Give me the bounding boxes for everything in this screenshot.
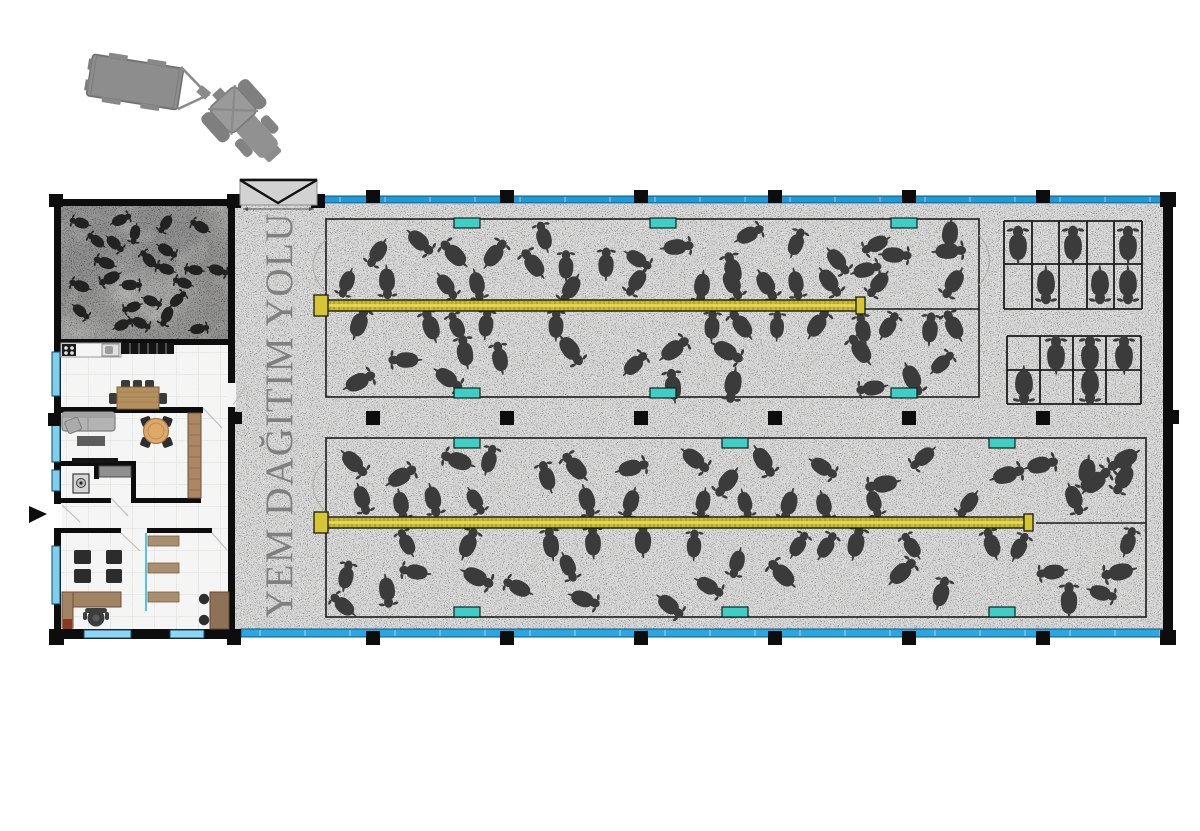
- svg-text:YEM DAĞITIM YOLU: YEM DAĞITIM YOLU: [257, 212, 301, 618]
